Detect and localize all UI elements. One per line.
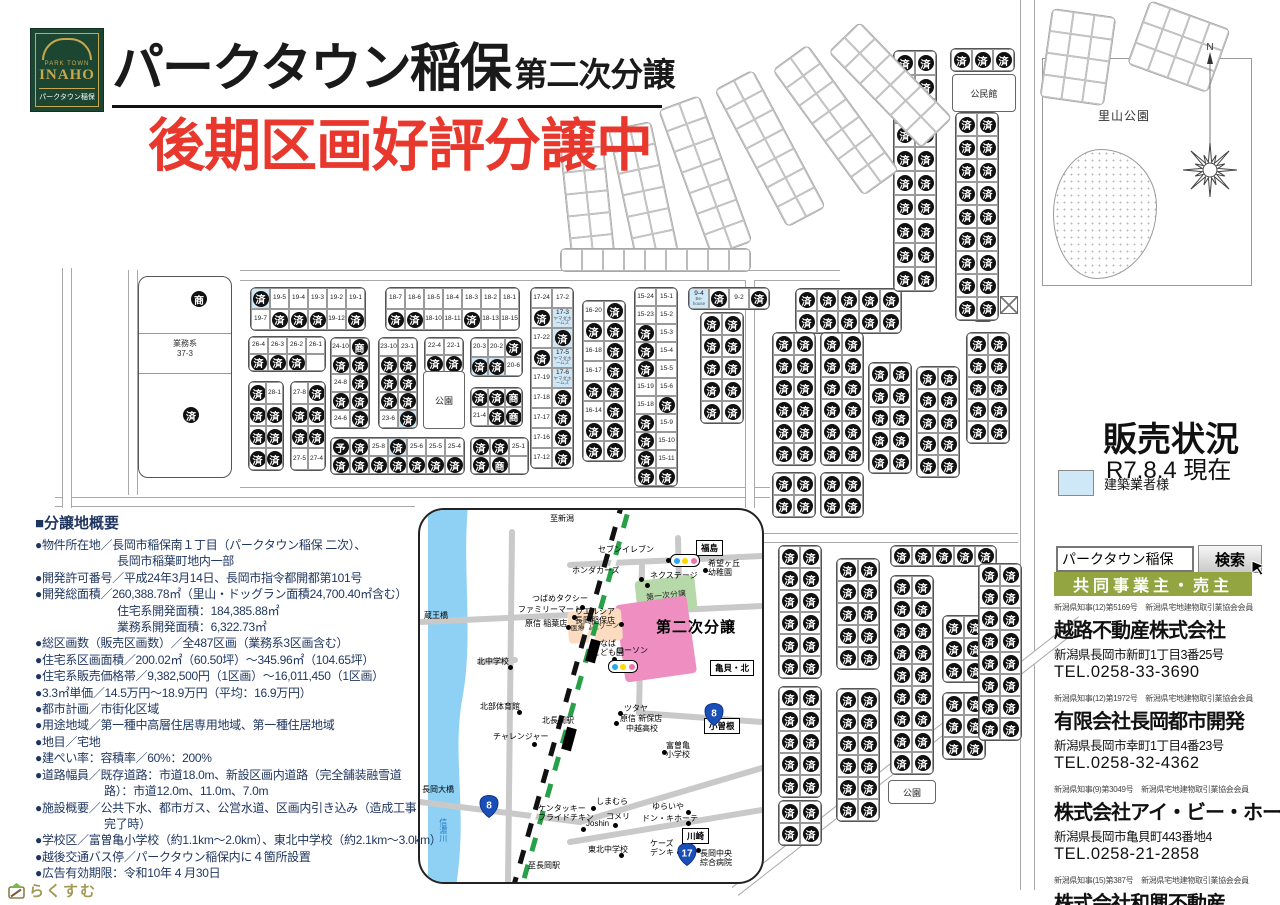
sold-mark: 済 xyxy=(381,375,397,391)
lot-cell-sold: 済 xyxy=(837,711,858,733)
sold-mark: 済 xyxy=(936,548,952,564)
lot-cell-sold: 済 xyxy=(462,309,481,330)
lot-cell-sold: 済 xyxy=(912,664,933,686)
lot-cell-sold: 済 xyxy=(943,737,964,759)
traffic-signal-icon xyxy=(608,660,638,673)
lot-cell-sold: 済 xyxy=(956,136,977,159)
sold-mark: 済 xyxy=(506,340,522,356)
sold-mark: 済 xyxy=(820,292,836,308)
sold-mark: 済 xyxy=(975,52,991,68)
sold-mark: 済 xyxy=(946,740,962,756)
lot-cell-commercial: 商 xyxy=(490,456,509,474)
lot-cell-empty xyxy=(1088,37,1112,62)
lot-cell-sold: 済 xyxy=(773,443,794,465)
sold-mark: 済 xyxy=(918,247,934,263)
sold-mark: 済 xyxy=(371,457,387,473)
sold-mark: 済 xyxy=(797,336,813,352)
lot-cell-empty xyxy=(568,214,591,238)
sold-mark: 済 xyxy=(982,611,998,627)
lot-cell-sold: 済 xyxy=(796,289,817,311)
logo-line3: パークタウン稲保 xyxy=(39,88,95,102)
lot-cell-number: 18-11 xyxy=(443,309,462,330)
lot-block: 済済済済済済済済済済 xyxy=(778,686,822,798)
lot-cell-sold: 済 xyxy=(858,755,879,777)
lot-cell-sold: 済 xyxy=(880,289,901,311)
company-tel: TEL.0258-21-2858 xyxy=(1054,845,1280,864)
lot-cell-sold: 済 xyxy=(552,328,573,348)
lot-cell-number: 15-6 xyxy=(656,378,677,396)
lot-cell-number: 28-1 xyxy=(266,382,283,404)
poi-dot xyxy=(613,823,618,828)
lot-cell-number: 25-1 xyxy=(509,438,528,456)
sold-mark: 済 xyxy=(840,628,856,644)
sold-mark: 済 xyxy=(991,424,1007,440)
sold-mark: 済 xyxy=(427,356,443,372)
lot-cell-number: 15-2 xyxy=(656,306,677,324)
lot-cell-sold: 済 xyxy=(837,689,858,711)
lot-cell-sold: 済 xyxy=(308,404,325,426)
lot-block: 9-4Be-house済9-2済 xyxy=(688,287,770,310)
lot-cell-sold: 済 xyxy=(346,309,365,330)
sold-mark: 済 xyxy=(586,383,602,399)
poi-label: しまむら xyxy=(596,798,628,807)
lot-cell-sold: 済 xyxy=(583,421,604,441)
sold-mark: 済 xyxy=(407,312,423,328)
lot-cell-number: 25-5 xyxy=(426,438,445,456)
lot-cell-number: 15-11 xyxy=(656,450,677,468)
lot-cell-empty xyxy=(645,249,666,271)
lot-cell-sold: 済 xyxy=(821,399,842,421)
sold-mark: 済 xyxy=(920,436,936,452)
lot-cell-sold: 済 xyxy=(249,448,266,470)
lot-cell-sold: 済 xyxy=(956,113,977,136)
lot-cell-sold: 済 xyxy=(894,267,915,291)
sold-mark: 済 xyxy=(381,393,397,409)
svg-text:8: 8 xyxy=(486,801,492,812)
sold-mark: 済 xyxy=(982,677,998,693)
lot-block: 済済済済 xyxy=(778,800,822,846)
lot-cell-sold: 済 xyxy=(979,586,1000,608)
page-title-suffix: 第二次分譲 xyxy=(514,56,674,93)
sold-mark: 済 xyxy=(918,151,934,167)
lot-cell-sold: 済 xyxy=(993,49,1014,71)
lot-block: 16-20済済済16-18済16-17済済済16-14済済済済済 xyxy=(582,300,626,462)
lot-cell-sold: 済 xyxy=(471,357,488,376)
sold-mark: 済 xyxy=(893,366,909,382)
lot-cell-sold: 済 xyxy=(837,647,858,669)
sold-mark: 済 xyxy=(659,469,675,485)
sold-mark: 済 xyxy=(400,375,416,391)
lot-cell-sold: 済 xyxy=(821,495,842,517)
poi-label: 長岡中央綜合病院 xyxy=(700,850,732,868)
poi-label: セブンイレブン xyxy=(598,546,654,555)
lot-block: 済済済済済済済済済済 xyxy=(836,558,880,670)
lot-block: 済済済済済済済済済済 xyxy=(700,312,744,424)
sold-mark: 済 xyxy=(920,370,936,386)
lot-cell-number: 15-18 xyxy=(635,396,656,414)
lot-cell-sold: 済 xyxy=(891,642,912,664)
lot-block: 23-1023-1済済済済済済23-6済 xyxy=(378,337,418,429)
sold-mark: 済 xyxy=(845,336,861,352)
joint-sellers-heading: 共同事業主・売主 xyxy=(1054,572,1252,596)
logo-line2: INAHO xyxy=(39,67,95,84)
sold-mark: 済 xyxy=(586,323,602,339)
utility-box xyxy=(1000,296,1018,314)
lot-cell-sold: 済 xyxy=(407,456,426,474)
lot-cell-sold: 済 xyxy=(709,288,729,309)
sold-mark: 済 xyxy=(704,404,720,420)
poi-label: ホンダカーズ xyxy=(572,567,620,576)
sold-mark: 済 xyxy=(980,163,996,179)
poi-label: ウエルシア長岡稲保店 xyxy=(575,608,615,626)
title-row: パークタウン稲保 第二次分譲 xyxy=(112,26,662,108)
sold-mark: 済 xyxy=(861,628,877,644)
sold-mark: 済 xyxy=(861,606,877,622)
lot-block: 26-426-326-226-1済済済 xyxy=(248,336,326,372)
lot-block: 済済済済 xyxy=(820,472,864,518)
lot-block: 済19-519-419-319-219-119-7済済済19-12済 xyxy=(250,287,366,331)
lot-cell-sold: 済 xyxy=(773,377,794,399)
lot-cell-sold: 済 xyxy=(287,354,306,371)
lot-cell-number: 20-2 xyxy=(488,338,505,357)
lot-cell-sold: 済 xyxy=(821,473,842,495)
sold-mark: 済 xyxy=(920,392,936,408)
sold-mark: 済 xyxy=(489,390,505,406)
sold-mark: 済 xyxy=(861,714,877,730)
sold-mark: 済 xyxy=(638,451,654,467)
lot-cell-empty xyxy=(306,354,325,371)
lot-cell-sold: 済 xyxy=(838,311,859,333)
lot-cell-sold: 済 xyxy=(943,616,964,638)
search-input[interactable] xyxy=(1056,546,1194,572)
lot-cell-sold: 済 xyxy=(894,171,915,195)
sold-mark: 済 xyxy=(980,186,996,202)
lot-block: 済済済済済済済済済済済済 xyxy=(772,332,816,466)
sold-mark: 済 xyxy=(782,756,798,772)
lot-cell-sold: 済 xyxy=(635,414,656,432)
sold-mark: 済 xyxy=(982,655,998,671)
lot-block: 済済済済済済済済済済済済 xyxy=(778,545,822,679)
lot-cell-sold: 済 xyxy=(943,638,964,660)
lot-cell-sold: 済 xyxy=(773,421,794,443)
sold-mark: 済 xyxy=(638,433,654,449)
sold-mark: 済 xyxy=(472,359,488,375)
overview-item: ●物件所在地／長岡市稲保南１丁目（パークタウン稲保 二次）、 xyxy=(35,537,427,553)
lot-cell-sold: 済 xyxy=(912,708,933,730)
lot-cell-sold: 済 xyxy=(977,297,998,320)
sold-mark: 済 xyxy=(941,414,957,430)
sold-mark: 済 xyxy=(352,411,368,427)
sold-mark: 済 xyxy=(250,451,266,467)
lot-cell-sold: 済 xyxy=(977,113,998,136)
lot-cell-sold: 済 xyxy=(869,407,890,429)
lot-cell-sold: 済 xyxy=(800,687,821,709)
sold-mark: 済 xyxy=(991,336,1007,352)
sold-mark: 済 xyxy=(978,548,994,564)
sold-mark: 済 xyxy=(941,370,957,386)
satoyama-park-label: 里山公園 xyxy=(1098,107,1150,124)
sold-mark: 済 xyxy=(915,711,931,727)
sold-mark: 済 xyxy=(776,476,792,492)
lot-cell-sold: 済 xyxy=(967,333,988,355)
lot-cell-sold: 済 xyxy=(350,410,369,428)
lot-cell-sold: 済 xyxy=(912,576,933,598)
sold-mark: 済 xyxy=(845,402,861,418)
sold-mark: 済 xyxy=(980,140,996,156)
sold-mark: 済 xyxy=(824,424,840,440)
lot-cell-sold: 済 xyxy=(891,576,912,598)
lot-cell-sold: 済 xyxy=(1000,718,1021,740)
lot-cell-sold: 済 xyxy=(794,473,815,495)
lot-cell-sold: 済 xyxy=(773,399,794,421)
lot-cell-sold: 済 xyxy=(490,438,509,456)
lot-cell-sold: 済 xyxy=(722,379,743,401)
divider xyxy=(139,333,231,334)
sold-mark: 済 xyxy=(381,357,397,373)
sold-mark: 済 xyxy=(893,388,909,404)
company-address: 新潟県長岡市亀貝町443番地4 xyxy=(1054,826,1280,845)
overview-list: ●物件所在地／長岡市稲保南１丁目（パークタウン稲保 二次）、長岡市稲葉町地内一部… xyxy=(35,537,427,882)
sold-mark: 済 xyxy=(607,423,623,439)
sold-mark: 済 xyxy=(797,402,813,418)
lot-cell-number: 18-2 xyxy=(481,288,500,309)
lot-cell-sold: 済 xyxy=(552,388,573,408)
lot-cell-sold: 済 xyxy=(722,357,743,379)
sold-mark: 済 xyxy=(845,358,861,374)
lot-cell-sold: 済 xyxy=(837,755,858,777)
lot-cell-number: 9-2 xyxy=(729,288,749,309)
sold-mark: 済 xyxy=(840,714,856,730)
sold-mark: 済 xyxy=(782,549,798,565)
sold-mark: 済 xyxy=(291,312,307,328)
lot-cell-sold: 済 xyxy=(488,407,505,426)
lot-cell-sold: 済 xyxy=(979,608,1000,630)
search-button[interactable]: 検索 xyxy=(1198,545,1262,573)
lot-cell-sold: 済 xyxy=(977,251,998,274)
lot-cell-sold: 済 xyxy=(869,451,890,473)
sold-mark: 済 xyxy=(803,593,819,609)
intersection-badge: 福島 xyxy=(696,540,723,556)
sold-mark: 済 xyxy=(400,393,416,409)
lot-cell-empty xyxy=(1091,15,1115,40)
sold-mark: 済 xyxy=(797,358,813,374)
lot-cell-sold: 済 xyxy=(794,421,815,443)
sold-mark: 済 xyxy=(861,780,877,796)
overview-item: ●越後交通バス停／パークタウン稲保内に４箇所設置 xyxy=(35,849,427,865)
lot-cell-sold: 済 xyxy=(858,647,879,669)
lot-cell-sold: 済 xyxy=(800,634,821,656)
lot-cell-number: 19-3 xyxy=(308,288,327,309)
commercial-mark: 商 xyxy=(492,457,508,473)
lot-cell-sold: 済 xyxy=(821,333,842,355)
park-label: 公園 xyxy=(423,371,465,429)
overview-item: 長岡市稲葉町地内一部 xyxy=(35,553,427,569)
sold-mark: 済 xyxy=(1003,633,1019,649)
lot-cell-sold: 済 xyxy=(977,182,998,205)
lot-cell-number: 18-1 xyxy=(500,288,519,309)
lot-cell-sold: 済 xyxy=(821,377,842,399)
river-shape xyxy=(428,510,468,882)
sold-mark: 済 xyxy=(824,358,840,374)
sold-mark: 済 xyxy=(982,699,998,715)
sold-mark: 済 xyxy=(894,601,910,617)
sold-mark: 済 xyxy=(309,385,325,401)
poi-dot xyxy=(639,577,644,582)
sold-mark: 済 xyxy=(803,756,819,772)
sold-mark: 済 xyxy=(991,358,1007,374)
lot-cell-sold: 済 xyxy=(912,598,933,620)
lot-cell-sold: 済 xyxy=(915,243,936,267)
lot-cell-sold: 済 xyxy=(891,730,912,752)
sold-mark: 済 xyxy=(840,758,856,774)
sold-mark: 済 xyxy=(638,469,654,485)
lot-cell-sold: 済 xyxy=(821,421,842,443)
sold-mark: 済 xyxy=(824,336,840,352)
lot-cell-sold: 済 xyxy=(379,392,398,410)
poi-dot xyxy=(614,721,619,726)
lot-cell-number: 25-4 xyxy=(445,438,464,456)
overview-item: ●道路幅員／既存道路：市道18.0m、新設区画内道路（完全舗装融雪道 xyxy=(35,767,427,783)
sold-mark: 済 xyxy=(782,637,798,653)
sold-mark: 済 xyxy=(803,690,819,706)
lot-cell-sold: 済 xyxy=(858,733,879,755)
sold-mark: 済 xyxy=(309,429,325,445)
lot-cell-number: 21-4 xyxy=(471,407,488,426)
company-address: 新潟県長岡市幸町1丁目4番23号 xyxy=(1054,735,1280,754)
lot-cell-sold: 済 xyxy=(779,568,800,590)
sold-mark: 済 xyxy=(782,712,798,728)
lot-cell-sold: 済 xyxy=(773,355,794,377)
lot-cell-sold: 済 xyxy=(956,159,977,182)
lot-cell-sold: 済 xyxy=(773,495,794,517)
poi-label: チャレンジャー xyxy=(493,733,549,742)
lot-cell-sold: 済 xyxy=(979,718,1000,740)
lot-cell-sold: 済 xyxy=(917,433,938,455)
lot-cell-sold: 済 xyxy=(249,426,266,448)
lot-cell-sold: 済 xyxy=(859,289,880,311)
lot-cell-sold: 済 xyxy=(842,473,863,495)
lot-cell-number: 18-3 xyxy=(462,288,481,309)
lot-cell-sold: 済 xyxy=(471,438,490,456)
lot-cell-sold: 済 xyxy=(604,441,625,461)
lot-cell-sold: 済 xyxy=(552,408,573,428)
lot-cell-number: 18-15 xyxy=(500,309,519,330)
lot-cell-sold: 済 xyxy=(379,374,398,392)
sold-mark: 済 xyxy=(980,117,996,133)
lot-cell-sold: 済 xyxy=(838,289,859,311)
lot-cell-sold: 済 xyxy=(388,456,407,474)
lot-cell-sold: 済 xyxy=(350,438,369,456)
company-license: 新潟県知事(9)第3049号 新潟県宅地建物取引業協会会員 xyxy=(1054,784,1280,795)
lot-cell-sold: 済 xyxy=(426,456,445,474)
lot-cell-sold: 済 xyxy=(951,49,972,71)
lot-cell-number: 23-1 xyxy=(398,338,417,356)
sold-mark: 済 xyxy=(267,429,283,445)
poi-label: 至長岡駅 xyxy=(528,862,560,871)
poi-label: 北長岡駅 xyxy=(542,717,574,726)
lot-cell-sold: 済 xyxy=(891,664,912,686)
sold-mark: 済 xyxy=(915,645,931,661)
lot-cell-number: 17-2 xyxy=(552,288,573,308)
lot-cell-sold: 済 xyxy=(604,321,625,341)
sold-mark: 済 xyxy=(803,826,819,842)
sold-mark: 済 xyxy=(862,292,878,308)
lot-cell-sold: 済 xyxy=(701,335,722,357)
lot-block: 済済済済済済済済済済 xyxy=(868,362,912,474)
sold-mark: 済 xyxy=(183,407,199,423)
lot-cell-sold: 済 xyxy=(800,612,821,634)
lot-cell-sold: 済 xyxy=(635,324,656,342)
sold-mark: 済 xyxy=(970,358,986,374)
sold-mark: 済 xyxy=(872,366,888,382)
sold-mark: 済 xyxy=(893,410,909,426)
business-lot-label: 業務系37-3 xyxy=(139,339,231,360)
sold-mark: 済 xyxy=(803,637,819,653)
lot-cell-sold: 済 xyxy=(943,693,964,715)
lot-cell-sold: 済 xyxy=(249,354,268,371)
lot-cell-number: 19-5 xyxy=(270,288,289,309)
sold-mark: 済 xyxy=(446,356,462,372)
lot-cell-sold: 済 xyxy=(308,309,327,330)
sold-mark: 済 xyxy=(941,436,957,452)
lot-cell-sold: 済 xyxy=(779,656,800,678)
lot-cell-number: 26-2 xyxy=(287,337,306,354)
lot-cell-number: 19-7 xyxy=(251,309,270,330)
sold-mark: 済 xyxy=(915,667,931,683)
road xyxy=(745,280,755,508)
sold-mark: 済 xyxy=(725,338,741,354)
lot-cell-number: 23-6 xyxy=(379,410,398,428)
overview-item: ●建ぺい率：容積率／60%：200% xyxy=(35,750,427,766)
sold-mark: 済 xyxy=(799,314,815,330)
lot-cell-sold: 済 xyxy=(842,377,863,399)
lot-cell-sold: 済 xyxy=(249,404,266,426)
lot-cell-sold: 済 xyxy=(1000,608,1021,630)
lot-cell-sold: 済 xyxy=(912,730,933,752)
lot-cell-empty xyxy=(561,249,582,271)
lot-block: 済済済済済済済済済済 xyxy=(916,366,960,478)
house-icon xyxy=(8,882,25,899)
lot-cell-number: 15-10 xyxy=(656,432,677,450)
lot-cell-sold: 済 xyxy=(604,401,625,421)
lot-cell-sold: 済 xyxy=(398,374,417,392)
brand-name: らくすむ xyxy=(29,880,97,901)
sold-mark: 済 xyxy=(980,232,996,248)
seller-company: 新潟県知事(15)第387号 新潟県宅地建物取引業協会会員株式会社和興不動産新潟… xyxy=(1054,875,1280,905)
lot-cell-sold: 済 xyxy=(858,689,879,711)
lot-cell-sold: 済 xyxy=(388,438,407,456)
sold-mark: 済 xyxy=(803,659,819,675)
overview-item: ●開発総面積／260,388.78㎡（里山・ドッグラン面積24,700.40㎡含… xyxy=(35,586,427,602)
poi-label: 東北中学校 xyxy=(588,846,628,855)
lot-cell-sold: 済 xyxy=(289,309,308,330)
lot-cell-sold: 済 xyxy=(842,333,863,355)
sold-mark: 済 xyxy=(289,355,305,371)
lot-cell-sold: 済 xyxy=(956,228,977,251)
sold-mark: 済 xyxy=(555,390,571,406)
sold-mark: 済 xyxy=(607,363,623,379)
commercial-mark: 商 xyxy=(506,409,522,425)
lot-cell-sold: 済 xyxy=(988,377,1009,399)
sold-mark: 済 xyxy=(607,343,623,359)
lot-cell-number: 16-20 xyxy=(583,301,604,321)
sold-mark: 済 xyxy=(270,355,286,371)
lot-cell-sold: 済 xyxy=(794,355,815,377)
sold-mark: 済 xyxy=(390,457,406,473)
lot-block: 15-2415-115-2315-2済15-3済15-4済15-515-1915… xyxy=(634,287,678,487)
sold-mark: 済 xyxy=(797,380,813,396)
sold-mark: 済 xyxy=(799,292,815,308)
